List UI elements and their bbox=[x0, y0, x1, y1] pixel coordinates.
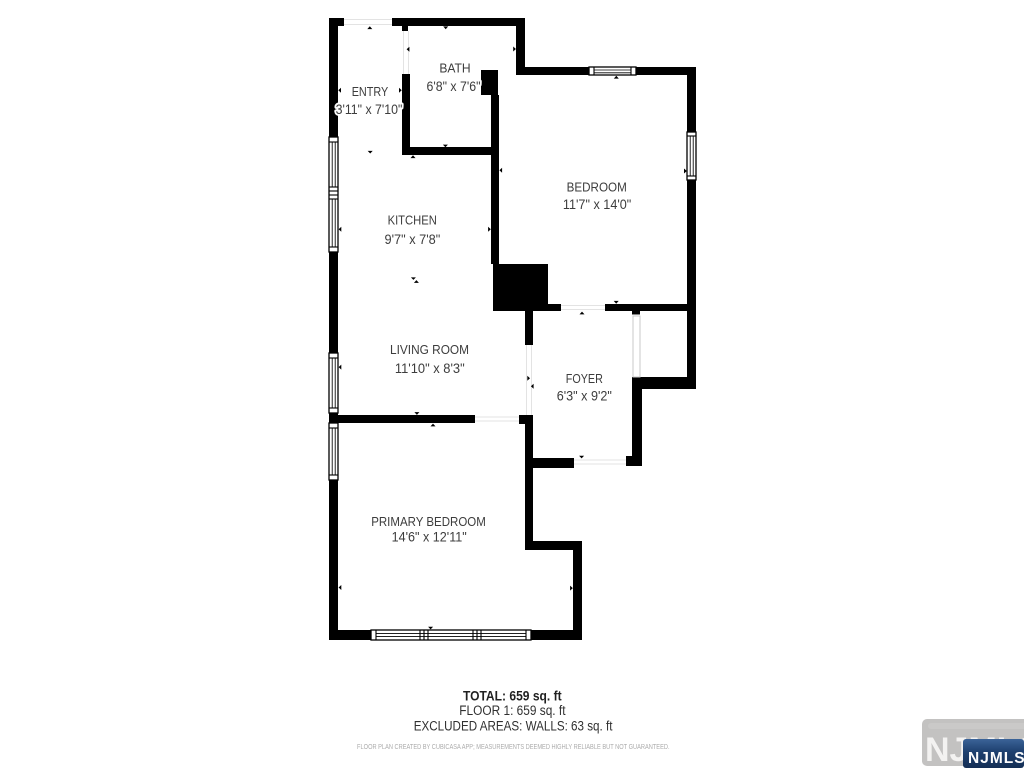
svg-text:11'10" x 8'3": 11'10" x 8'3" bbox=[395, 361, 465, 376]
svg-text:FOYER: FOYER bbox=[566, 372, 603, 386]
svg-text:FLOOR 1: 659 sq. ft: FLOOR 1: 659 sq. ft bbox=[459, 703, 565, 718]
svg-text:3'11" x 7'10": 3'11" x 7'10" bbox=[336, 102, 403, 117]
svg-text:EXCLUDED AREAS: WALLS: 63 sq.: EXCLUDED AREAS: WALLS: 63 sq. ft bbox=[414, 719, 613, 734]
svg-text:9'7" x 7'8": 9'7" x 7'8" bbox=[385, 232, 441, 247]
svg-text:6'8" x 7'6": 6'8" x 7'6" bbox=[427, 79, 481, 94]
svg-text:FLOOR PLAN CREATED BY CUBICASA: FLOOR PLAN CREATED BY CUBICASA APP; MEAS… bbox=[357, 742, 670, 751]
svg-text:NJMLS: NJMLS bbox=[968, 750, 1024, 767]
svg-text:6'3" x 9'2": 6'3" x 9'2" bbox=[557, 389, 612, 404]
svg-text:14'6" x 12'11": 14'6" x 12'11" bbox=[392, 530, 467, 545]
svg-text:11'7" x 14'0": 11'7" x 14'0" bbox=[563, 197, 631, 212]
svg-text:BATH: BATH bbox=[439, 62, 470, 76]
svg-text:LIVING ROOM: LIVING ROOM bbox=[390, 343, 469, 357]
svg-text:PRIMARY BEDROOM: PRIMARY BEDROOM bbox=[371, 515, 486, 529]
svg-text:KITCHEN: KITCHEN bbox=[388, 214, 437, 228]
svg-text:ENTRY: ENTRY bbox=[352, 85, 389, 99]
svg-text:TOTAL: 659 sq. ft: TOTAL: 659 sq. ft bbox=[463, 689, 562, 704]
svg-text:BEDROOM: BEDROOM bbox=[567, 180, 627, 194]
